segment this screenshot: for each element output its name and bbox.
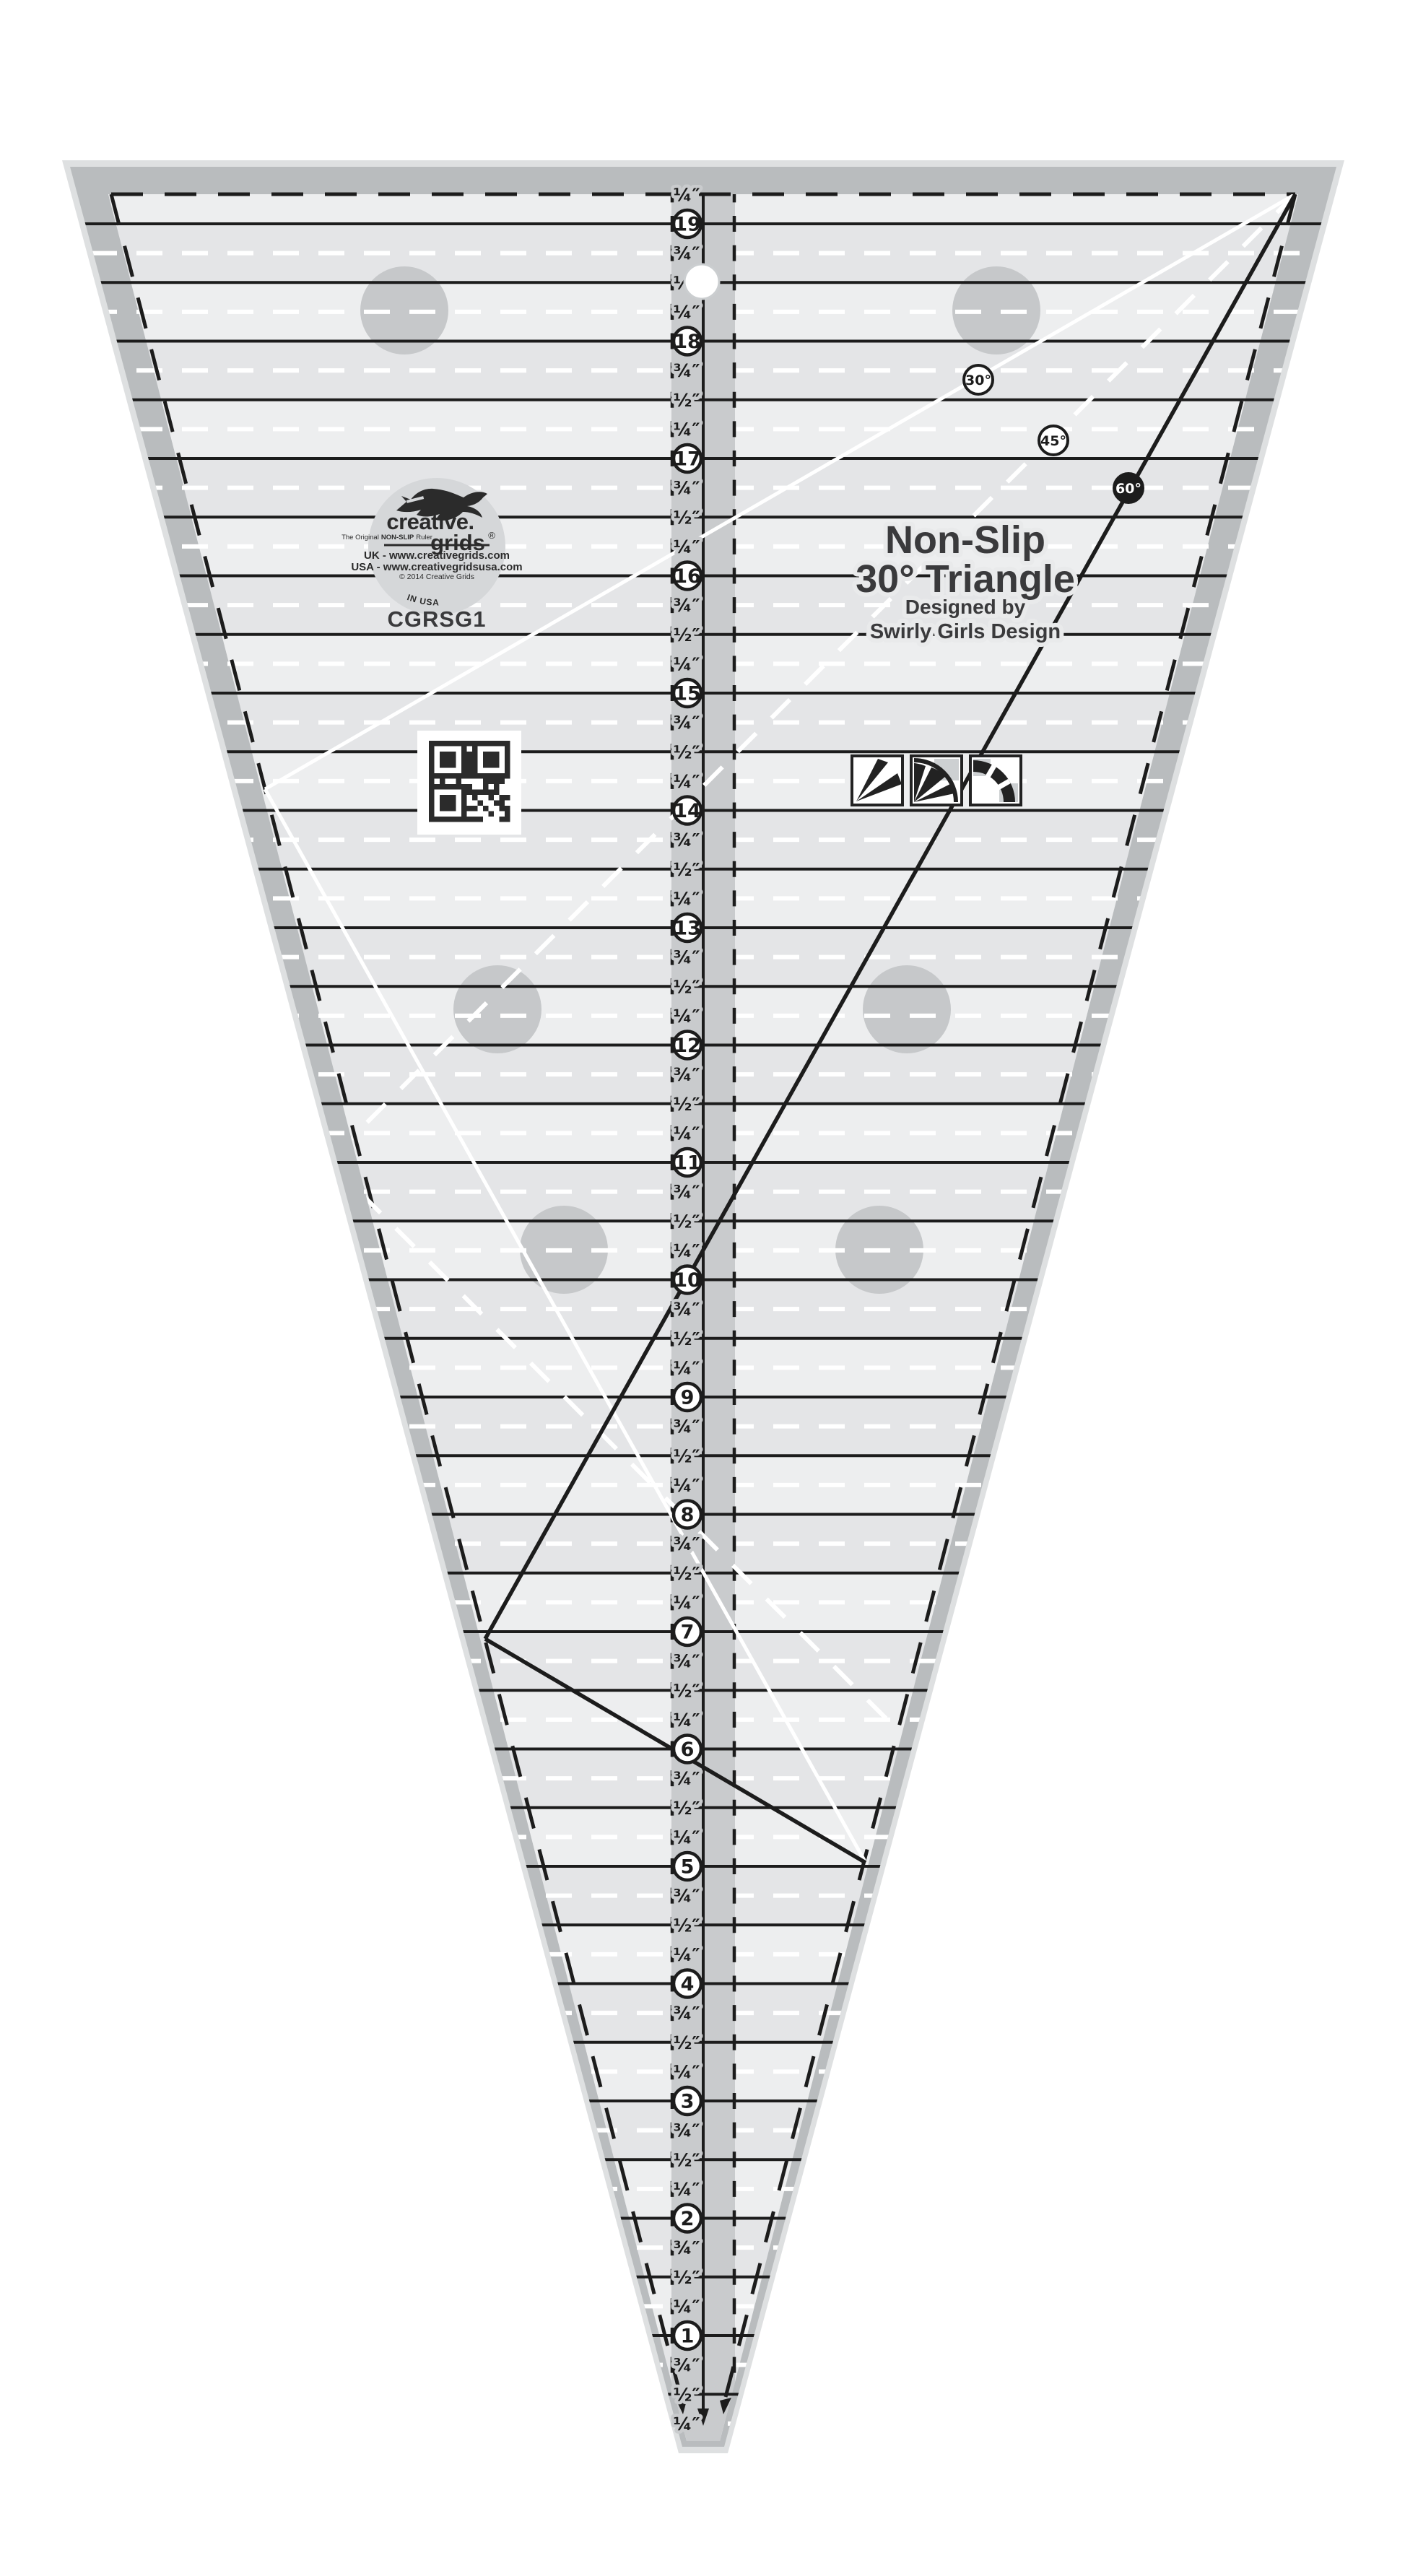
scale-fraction-label: ½″ xyxy=(673,1211,700,1232)
hanging-hole xyxy=(684,264,719,299)
ruler-product-image: creative. grids ® The OriginalNON-SLIPRu… xyxy=(0,0,1405,2576)
logo-tagline: The OriginalNON-SLIPRuler xyxy=(342,534,432,541)
qr-module xyxy=(478,790,484,796)
scale-number-text: 11 xyxy=(674,1152,701,1175)
scale-number-text: 12 xyxy=(674,1035,701,1057)
angle-marker-30: 30° xyxy=(964,365,993,394)
qr-module xyxy=(467,757,473,763)
qr-module xyxy=(478,817,484,822)
scale-fraction-label: ¼″ xyxy=(673,2179,700,2200)
scale-number-text: 2 xyxy=(681,2208,695,2230)
scale-number-text: 15 xyxy=(674,683,701,705)
qr-code xyxy=(417,731,521,835)
qr-module xyxy=(472,806,478,811)
qr-module xyxy=(472,817,478,822)
scale-fraction-label: ¼″ xyxy=(673,2296,700,2317)
qr-module xyxy=(489,790,495,796)
scale-number-8: 8 xyxy=(674,1501,701,1528)
scale-number-text: 9 xyxy=(681,1387,695,1409)
qr-module xyxy=(467,806,473,811)
scale-fraction-label: ¾″ xyxy=(673,478,700,499)
scale-number-text: 8 xyxy=(681,1504,695,1526)
scale-fraction-label: ½″ xyxy=(673,390,700,411)
scale-number-9: 9 xyxy=(674,1383,701,1411)
logo-registered-mark: ® xyxy=(488,530,495,541)
qr-module xyxy=(467,741,473,747)
scale-fraction-label: ¾″ xyxy=(673,1417,700,1437)
qr-module xyxy=(500,801,505,806)
scale-fraction-label: ½″ xyxy=(673,2384,700,2405)
scale-fraction-label: ¾″ xyxy=(673,360,700,381)
scale-number-text: 18 xyxy=(674,331,701,353)
qr-module xyxy=(429,779,435,785)
qr-module xyxy=(500,779,505,785)
scale-fraction-label: ¼″ xyxy=(673,1592,700,1613)
qr-module xyxy=(505,811,510,817)
scale-number-text: 3 xyxy=(681,2091,695,2113)
scale-fraction-label: ¾″ xyxy=(673,2355,700,2376)
qr-module xyxy=(467,817,473,822)
qr-module xyxy=(467,784,473,790)
scale-fraction-label: ¼″ xyxy=(673,1123,700,1144)
angle-marker-text: 30° xyxy=(965,373,991,388)
scale-number-text: 19 xyxy=(674,214,701,236)
scale-fraction-label: ¼″ xyxy=(673,536,700,557)
logo-usa-url: USA - www.creativegridsusa.com xyxy=(351,561,522,573)
scale-number-text: 4 xyxy=(681,1973,695,1996)
scale-fraction-label: ¾″ xyxy=(673,1064,700,1085)
scale-number-12: 12 xyxy=(674,1032,701,1059)
scale-fraction-label: ¼″ xyxy=(673,2414,700,2434)
scale-fraction-label: ¾″ xyxy=(673,1886,700,1907)
scale-fraction-label: ¼″ xyxy=(673,653,700,674)
scale-fraction-label: ½″ xyxy=(673,2267,700,2288)
product-icons xyxy=(852,756,1021,805)
scale-fraction-label: ¼″ xyxy=(673,302,700,323)
qr-finder xyxy=(483,752,500,768)
scale-fraction-label: ½″ xyxy=(673,2032,700,2053)
scale-number-text: 16 xyxy=(674,565,701,588)
scale-fraction-label: ¼″ xyxy=(673,1710,700,1731)
qr-module xyxy=(478,801,484,806)
scale-number-15: 15 xyxy=(674,679,701,707)
qr-finder xyxy=(440,752,456,768)
logo-tagline-pre: The Original xyxy=(342,534,379,541)
logo-tagline-mid: NON-SLIP xyxy=(381,534,414,541)
qr-module xyxy=(505,806,510,811)
scale-number-2: 2 xyxy=(674,2205,701,2232)
scale-number-text: 10 xyxy=(674,1269,701,1292)
scale-number-14: 14 xyxy=(674,797,701,824)
scale-number-text: 7 xyxy=(681,1622,695,1644)
scale-fraction-label: ½″ xyxy=(673,1798,700,1819)
qr-module xyxy=(500,806,505,811)
scale-fraction-label: ½″ xyxy=(673,1915,700,1936)
scale-fraction-label: ¼″ xyxy=(673,1357,700,1378)
scale-fraction-label: ¾″ xyxy=(673,2237,700,2258)
qr-module xyxy=(489,795,495,801)
qr-module xyxy=(472,790,478,796)
qr-module xyxy=(494,784,500,790)
grip-dot xyxy=(863,965,951,1053)
scale-number-text: 6 xyxy=(681,1739,695,1761)
angle-marker-60: 60° xyxy=(1114,474,1143,502)
qr-finder xyxy=(440,795,456,811)
scale-fraction-label: ½″ xyxy=(673,1680,700,1701)
qr-module xyxy=(483,790,489,796)
qr-module xyxy=(472,795,478,801)
scale-fraction-label: ½″ xyxy=(673,1328,700,1349)
logo-copyright: © 2014 Creative Grids xyxy=(399,573,474,581)
scale-fraction-label: ¾″ xyxy=(673,947,700,968)
scale-fraction-label: ¾″ xyxy=(673,1182,700,1203)
scale-fraction-label: ¼″ xyxy=(673,1475,700,1496)
scale-number-text: 5 xyxy=(681,1856,695,1879)
scale-number-19: 19 xyxy=(674,210,701,238)
scale-fraction-label: ¾″ xyxy=(673,595,700,616)
scale-number-18: 18 xyxy=(674,328,701,355)
scale-fraction-label: ½″ xyxy=(673,1563,700,1584)
title-line-4: Swirly Girls Design xyxy=(870,620,1061,643)
logo-tagline-post: Ruler xyxy=(416,534,432,541)
scale-number-7: 7 xyxy=(674,1618,701,1645)
scale-fraction-label: ¾″ xyxy=(673,1651,700,1672)
scale-number-17: 17 xyxy=(674,445,701,472)
qr-module xyxy=(505,817,510,822)
scale-fraction-label: ½″ xyxy=(673,2149,700,2170)
qr-module xyxy=(489,811,495,817)
qr-module xyxy=(467,768,473,774)
title-line-2: 30° Triangle xyxy=(856,557,1075,601)
scale-fraction-label: ¾″ xyxy=(673,830,700,850)
scale-fraction-label: ½″ xyxy=(673,625,700,645)
scale-number-text: 17 xyxy=(674,448,701,471)
scale-fraction-label: ½″ xyxy=(673,507,700,528)
scale-number-4: 4 xyxy=(674,1970,701,1998)
qr-module xyxy=(500,817,505,822)
scale-fraction-label: ½″ xyxy=(673,976,700,997)
qr-module xyxy=(456,779,462,785)
scale-fraction-label: ¼″ xyxy=(673,771,700,792)
qr-module xyxy=(440,779,445,785)
title-line-1: Non-Slip xyxy=(885,518,1045,562)
scale-fraction-label: ¾″ xyxy=(673,1533,700,1554)
qr-module xyxy=(467,762,473,768)
curve-ruler-icon xyxy=(970,756,1021,805)
qr-module xyxy=(467,790,473,796)
angle-marker-45: 45° xyxy=(1039,426,1068,455)
scale-fraction-label: ¼″ xyxy=(673,419,700,440)
scale-number-1: 1 xyxy=(674,2322,701,2349)
scale-fraction-label: ¼″ xyxy=(673,888,700,909)
angle-marker-text: 45° xyxy=(1040,433,1066,449)
scale-number-text: 1 xyxy=(681,2325,695,2348)
title-line-3: Designed by xyxy=(905,596,1026,618)
triangle-ruler-icon xyxy=(852,756,902,805)
scale-number-3: 3 xyxy=(674,2087,701,2115)
qr-module xyxy=(505,795,510,801)
scale-fraction-label: ¾″ xyxy=(673,2003,700,2024)
scale-fraction-label: ½″ xyxy=(673,859,700,880)
scale-fraction-label: ¼″ xyxy=(673,1240,700,1261)
scale-number-6: 6 xyxy=(674,1736,701,1763)
qr-module xyxy=(467,773,473,779)
angle-marker-text: 60° xyxy=(1115,481,1141,497)
qr-module xyxy=(494,790,500,796)
product-title: Non-Slip 30° Triangle Designed by Swirly… xyxy=(856,518,1075,643)
scale-fraction-label: ¼″ xyxy=(673,1827,700,1848)
scale-fraction-label: ¾″ xyxy=(673,2120,700,2141)
logo-uk-url: UK - www.creativegrids.com xyxy=(364,549,510,562)
qr-module xyxy=(483,784,489,790)
scale-number-11: 11 xyxy=(674,1149,701,1176)
scale-fraction-label: ¾″ xyxy=(673,243,700,264)
scale-number-text: 13 xyxy=(674,918,701,940)
scale-fraction-label: ¾″ xyxy=(673,713,700,734)
scale-fraction-label: ¼″ xyxy=(673,184,700,205)
scale-fraction-label: ¾″ xyxy=(673,1768,700,1789)
scale-fraction-label: ¼″ xyxy=(673,2061,700,2082)
scale-fraction-label: ¾″ xyxy=(673,1299,700,1320)
qr-module xyxy=(483,779,489,785)
grip-dot xyxy=(453,965,541,1053)
model-code: CGRSG1 xyxy=(388,606,487,632)
qr-module xyxy=(489,779,495,785)
qr-module xyxy=(467,752,473,757)
qr-module xyxy=(500,795,505,801)
scale-fraction-label: ¼″ xyxy=(673,1006,700,1027)
scale-fraction-label: ½″ xyxy=(673,741,700,762)
scale-number-10: 10 xyxy=(674,1266,701,1294)
qr-module xyxy=(494,801,500,806)
scale-number-16: 16 xyxy=(674,562,701,590)
scale-fraction-label: ½″ xyxy=(673,1445,700,1466)
scale-fraction-label: ½″ xyxy=(673,1094,700,1115)
fan-ruler-icon xyxy=(911,756,962,805)
scale-fraction-label: ¼″ xyxy=(673,1944,700,1965)
scale-number-5: 5 xyxy=(674,1853,701,1880)
scale-number-text: 14 xyxy=(674,800,701,822)
scale-number-13: 13 xyxy=(674,914,701,941)
qr-module xyxy=(494,779,500,785)
qr-module xyxy=(483,806,489,811)
